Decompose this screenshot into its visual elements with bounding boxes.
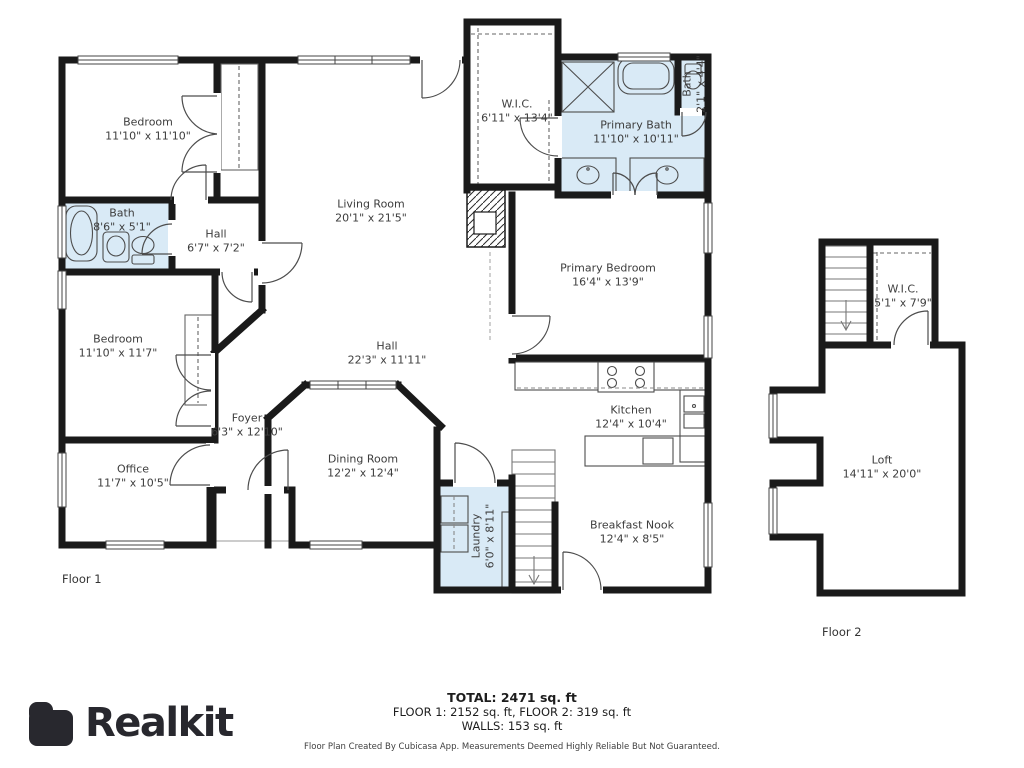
bag-icon	[28, 699, 74, 747]
room-label-bedroom-1: Bedroom11'10" x 11'10"	[105, 116, 191, 143]
room-label-bath-1: Bath8'6" x 5'1"	[93, 207, 151, 234]
floor-2-label: Floor 2	[822, 625, 862, 639]
room-label-wic-1: W.I.C.6'11" x 13'4"	[481, 98, 553, 125]
room-label-hall-2: Hall22'3" x 11'11"	[348, 340, 427, 367]
room-label-primary-bath: Primary Bath11'10" x 10'11"	[593, 119, 679, 146]
room-label-bedroom-2: Bedroom11'10" x 11'7"	[79, 333, 158, 360]
room-label-hall-1: Hall6'7" x 7'2"	[187, 228, 245, 255]
room-label-bath-2: Bath2'1" x 4'4"	[681, 55, 708, 113]
brand-name: Realkit	[85, 700, 233, 746]
floor-1-label: Floor 1	[62, 572, 102, 586]
room-label-loft: Loft14'11" x 20'0"	[843, 454, 922, 481]
room-label-primary-bedroom: Primary Bedroom16'4" x 13'9"	[560, 262, 656, 289]
room-label-office: Office11'7" x 10'5"	[97, 463, 169, 490]
room-label-kitchen: Kitchen12'4" x 10'4"	[595, 404, 667, 431]
room-label-living-room: Living Room20'1" x 21'5"	[335, 198, 407, 225]
room-labels: Bedroom11'10" x 11'10" Bath8'6" x 5'1" H…	[0, 0, 1024, 768]
room-label-breakfast-nook: Breakfast Nook12'4" x 8'5"	[590, 519, 674, 546]
room-label-foyer: Foyer6'3" x 12'10"	[211, 412, 283, 439]
floorplan-page: Bedroom11'10" x 11'10" Bath8'6" x 5'1" H…	[0, 0, 1024, 768]
room-label-laundry: Laundry6'0" x 8'11"	[470, 504, 497, 569]
room-label-wic-2: W.I.C.5'1" x 7'9"	[874, 283, 932, 310]
brand-logo: Realkit	[28, 699, 233, 747]
room-label-dining-room: Dining Room12'2" x 12'4"	[327, 453, 399, 480]
